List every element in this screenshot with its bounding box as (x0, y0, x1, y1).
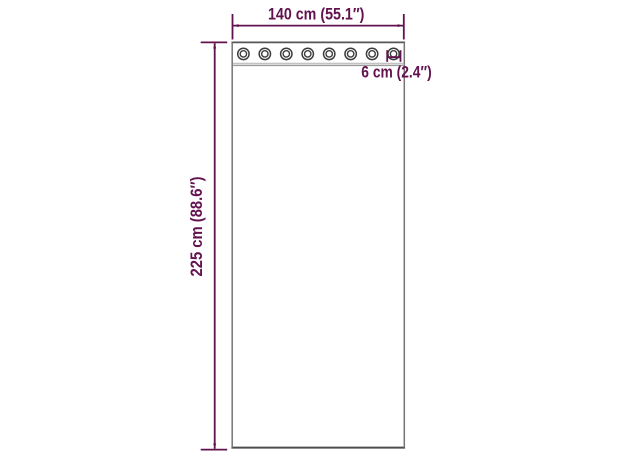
svg-text:6 cm (2.4″): 6 cm (2.4″) (361, 62, 431, 81)
svg-text:140 cm (55.1″): 140 cm (55.1″) (268, 4, 365, 23)
svg-text:225 cm (88.6″): 225 cm (88.6″) (187, 177, 206, 277)
